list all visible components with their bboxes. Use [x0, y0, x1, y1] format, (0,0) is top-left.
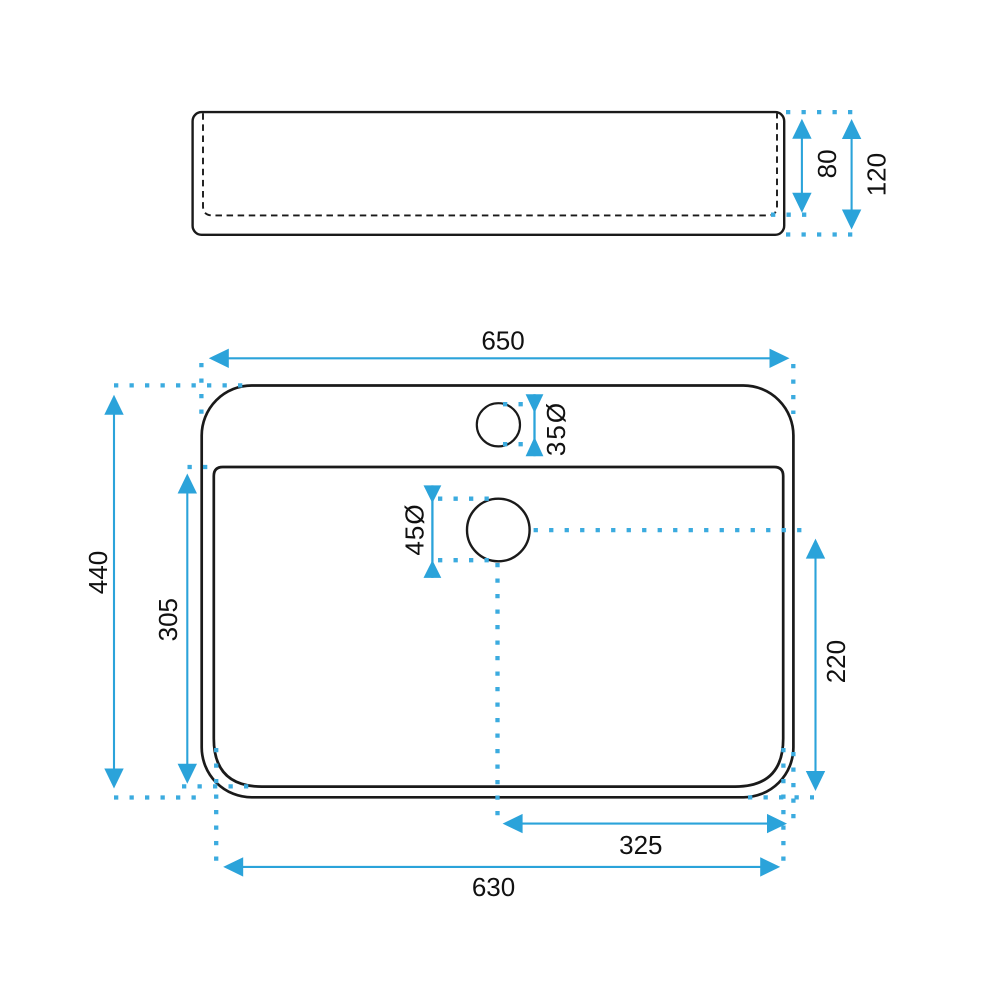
svg-text:325: 325: [619, 830, 662, 860]
svg-text:220: 220: [821, 640, 851, 683]
svg-text:80: 80: [812, 149, 842, 178]
svg-text:45Ø: 45Ø: [399, 503, 429, 555]
svg-text:630: 630: [472, 872, 515, 902]
svg-text:650: 650: [481, 326, 524, 356]
svg-text:440: 440: [83, 551, 113, 594]
svg-text:35Ø: 35Ø: [541, 401, 571, 456]
svg-text:120: 120: [862, 153, 892, 196]
svg-text:305: 305: [153, 598, 183, 641]
